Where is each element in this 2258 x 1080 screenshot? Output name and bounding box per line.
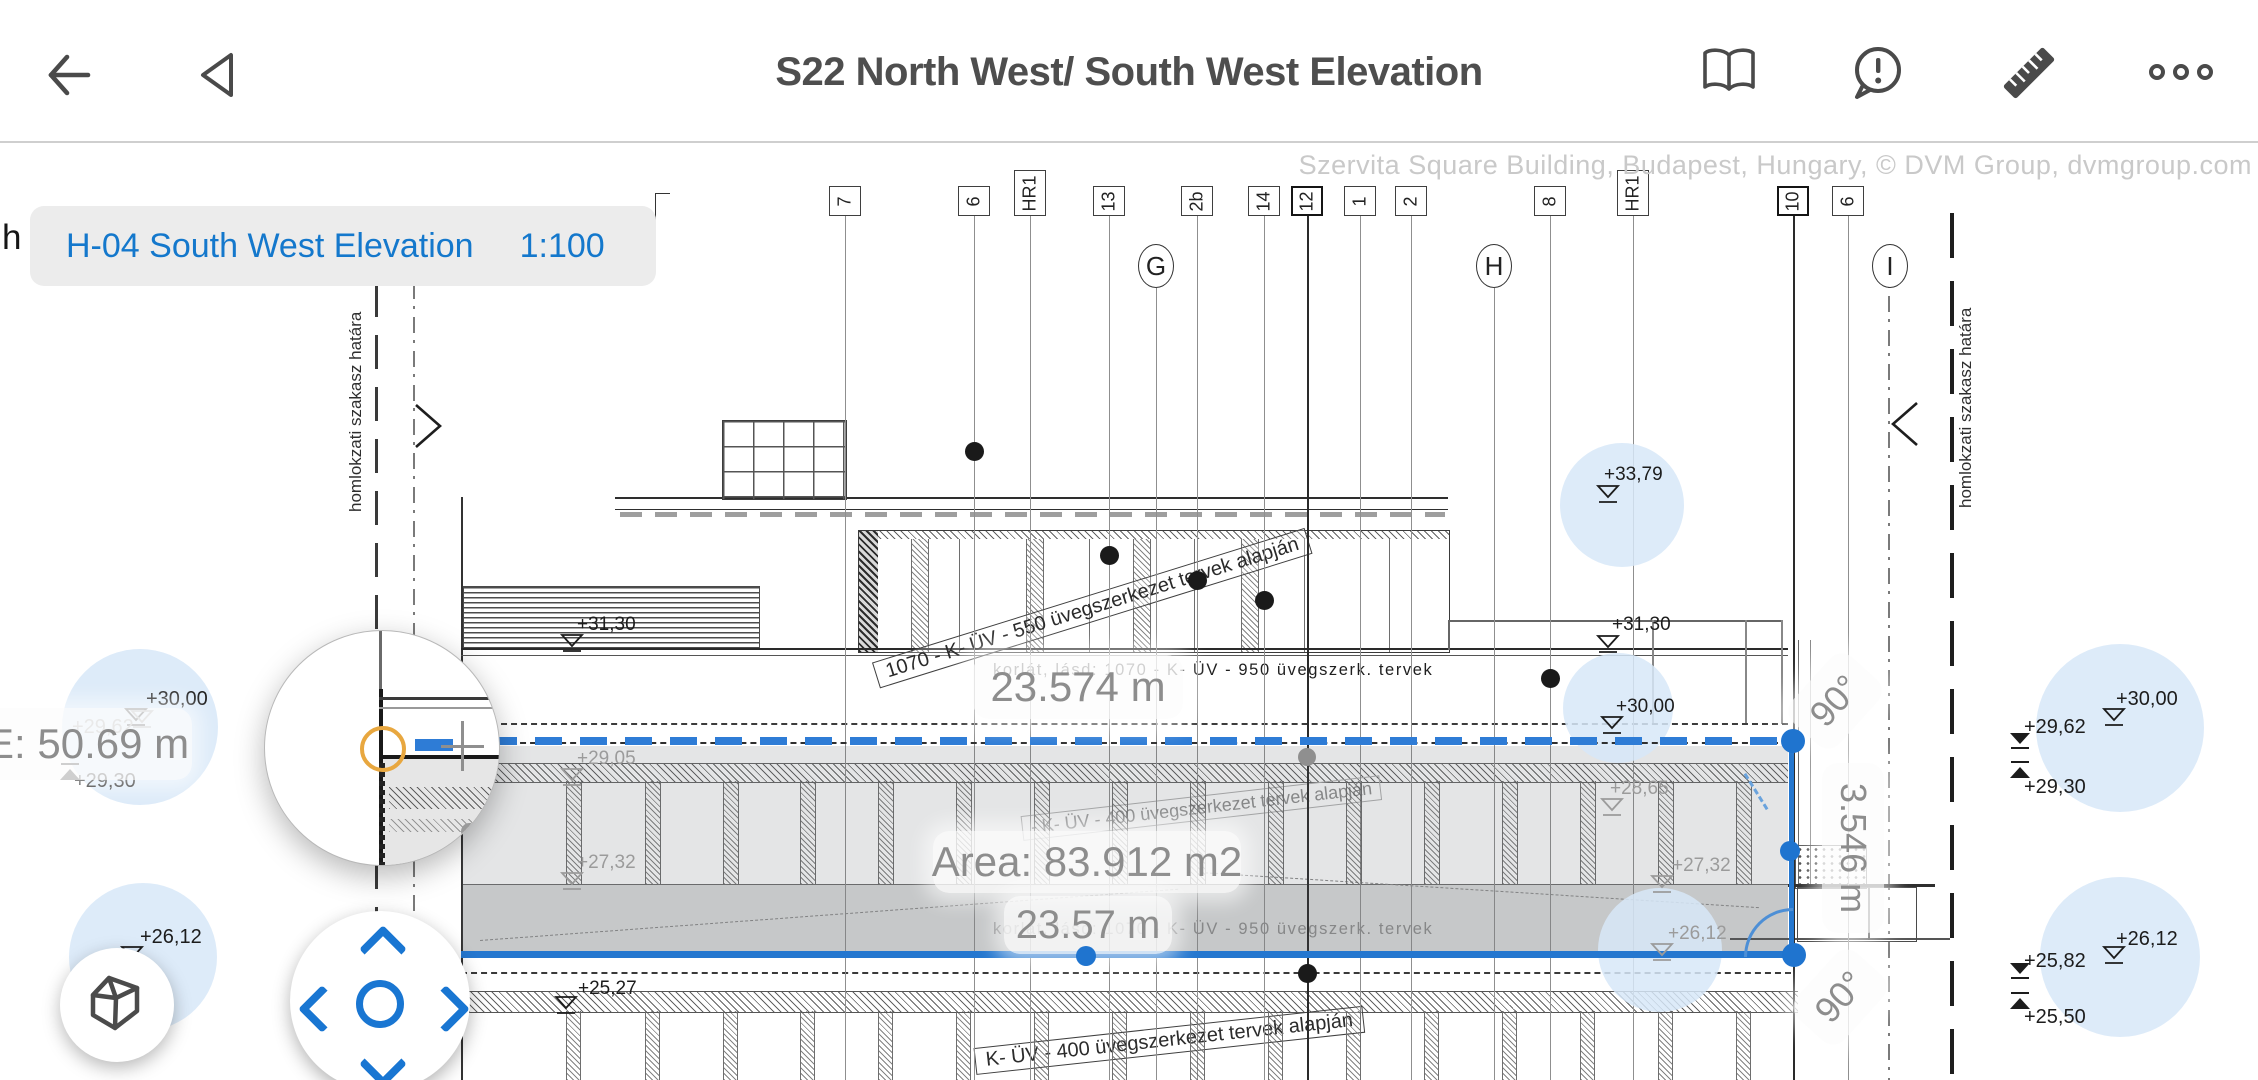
leader-dot <box>1100 546 1119 565</box>
mullion <box>956 1011 971 1080</box>
mullion <box>1502 1011 1517 1080</box>
level-marker-icon <box>2102 946 2126 970</box>
measure-length-top: 23.574 m <box>973 655 1183 719</box>
toolbar: S22 North West/ South West Elevation <box>0 0 2258 143</box>
level-marker-icon <box>1650 875 1674 899</box>
grid-marker-label: HR1 <box>1020 175 1041 211</box>
house-3d-icon <box>82 971 152 1040</box>
level-label: +29,62 <box>2024 716 2086 739</box>
level-label: +31,30 <box>577 614 636 636</box>
ruler-icon <box>1998 91 2060 108</box>
watermark: Szervita Square Building, Budapest, Hung… <box>1299 150 2252 181</box>
grid-marker-circle: I <box>1872 244 1908 288</box>
chevron-left-glyph <box>1891 401 1919 452</box>
mullion <box>1580 1011 1595 1080</box>
mullion <box>878 1011 893 1080</box>
grid-line <box>1494 288 1495 1080</box>
nav-pad[interactable] <box>290 911 470 1080</box>
grid-marker-circle: G <box>1138 244 1174 288</box>
grid-marker-label: 6 <box>963 196 984 206</box>
grid-marker-label: 2b <box>1187 191 1208 211</box>
grid-marker-box: 8 <box>1534 186 1566 216</box>
magnifier-loupe <box>264 630 500 866</box>
grid-marker-box: 6 <box>1832 186 1864 216</box>
mullion <box>723 1011 738 1080</box>
mullion <box>1034 1011 1049 1080</box>
grid-marker-box: 2 <box>1395 186 1427 216</box>
level-label: +25,27 <box>578 978 637 1000</box>
grid-marker-circle: H <box>1476 244 1512 288</box>
drawing-bracket <box>655 193 670 236</box>
previous-sheet-button[interactable] <box>194 48 248 107</box>
nav-up-button[interactable] <box>359 925 407 973</box>
measure-handle[interactable] <box>1781 729 1805 753</box>
level-marker-icon <box>554 996 578 1020</box>
grid-marker-label: 2 <box>1400 196 1421 206</box>
sheet-index-button[interactable] <box>1700 46 1758 101</box>
mullion <box>566 1011 581 1080</box>
chevron-right-glyph <box>414 403 442 454</box>
mullion <box>1658 1011 1673 1080</box>
level-marker-icon <box>1600 798 1624 822</box>
grid-marker-label: 12 <box>1297 191 1318 211</box>
level-marker-icon <box>1596 635 1620 659</box>
mullion <box>1190 1011 1205 1080</box>
grid-marker-box: 12 <box>1291 186 1323 216</box>
grid-marker-label: 1 <box>1349 196 1370 206</box>
leader-dot <box>965 442 984 461</box>
grid-marker-box: 10 <box>1777 186 1809 216</box>
boundary-text-left: homlokzati szakasz határa <box>346 332 366 512</box>
leader-dot <box>1541 669 1560 688</box>
nav-center-ring[interactable] <box>356 980 404 1028</box>
grid-marker-label: 8 <box>1539 196 1560 206</box>
ellipsis-icon <box>2148 73 2214 90</box>
level-label: +26,12 <box>140 926 202 949</box>
triangle-left-icon <box>194 89 248 106</box>
measure-handle[interactable] <box>1782 943 1806 967</box>
grid-marker-box: 14 <box>1248 186 1280 216</box>
level-label: +27,32 <box>577 852 636 874</box>
app-screen: S22 North West/ South West Elevation <box>0 0 2258 1080</box>
measure-tool-button[interactable] <box>1998 42 2060 109</box>
issue-bubble-icon <box>1848 89 1908 106</box>
sheet-chip[interactable]: H-04 South West Elevation 1:100 <box>30 206 656 286</box>
grid-marker-box: 7 <box>829 186 861 216</box>
measure-total-left: E: 50.69 m <box>0 708 192 780</box>
dark-mullion <box>859 531 878 652</box>
clipped-edge-text: h <box>2 218 21 258</box>
leader-dot <box>1255 591 1274 610</box>
measure-handle[interactable] <box>1780 841 1800 861</box>
meas​ure-area: Area: 83.912 m2 <box>933 831 1241 893</box>
back-arrow-icon <box>40 91 98 108</box>
level-label: +29,30 <box>2024 776 2086 799</box>
nav-down-button[interactable] <box>359 1040 407 1080</box>
mullion <box>800 1011 815 1080</box>
floor1-lintel-hatch <box>462 991 1798 1013</box>
mullion <box>1736 1011 1751 1080</box>
level-marker-icon <box>2102 708 2126 732</box>
measure-node-gray <box>1298 748 1316 766</box>
level-label: +25,50 <box>2024 1006 2086 1029</box>
book-icon <box>1700 83 1758 100</box>
level-marker-icon <box>2008 760 2032 784</box>
mullion <box>1346 1011 1361 1080</box>
roof-rail-structure <box>722 420 847 500</box>
level-marker-icon <box>2008 962 2032 986</box>
mullion <box>645 1011 660 1080</box>
level-marker-icon <box>1596 485 1620 509</box>
level-label: +28,65 <box>1610 778 1669 800</box>
level-label: +31,30 <box>1612 614 1671 636</box>
measure-height-right: 3.546 m <box>1822 763 1884 933</box>
boundary-text-right: homlokzati szakasz határa <box>1956 328 1976 508</box>
level-label: +33,79 <box>1604 464 1663 486</box>
level-marker-icon <box>2008 991 2032 1015</box>
leader-dot <box>1298 964 1317 983</box>
grid-marker-box: 13 <box>1093 186 1125 216</box>
level-marker-icon <box>1650 943 1674 967</box>
measure-handle[interactable] <box>1076 946 1096 966</box>
level-label: +26,12 <box>1668 923 1727 945</box>
grid-marker-box: 1 <box>1344 186 1376 216</box>
grid-marker-box: 2b <box>1181 186 1213 216</box>
level-label: +27,32 <box>1672 855 1731 877</box>
more-button[interactable] <box>2148 58 2214 91</box>
level-label: +30,00 <box>1616 696 1675 718</box>
level-label: +25,82 <box>2024 950 2086 973</box>
page-title: S22 North West/ South West Elevation <box>775 50 1482 95</box>
home-view-button[interactable] <box>60 948 174 1062</box>
grid-marker-label: 7 <box>834 196 855 206</box>
boundary-dashdot-right <box>1888 262 1890 1080</box>
level-label: +29,05 <box>577 748 636 770</box>
level-marker-icon <box>1600 716 1624 740</box>
mullion <box>1112 1011 1127 1080</box>
level-marker-icon <box>560 634 584 658</box>
snap-ring-icon <box>360 726 406 772</box>
grid-marker-label: 13 <box>1099 191 1120 211</box>
back-button[interactable] <box>40 46 98 109</box>
highlight-bubble <box>1560 443 1684 567</box>
sheet-chip-scale: 1:100 <box>520 227 605 266</box>
nav-left-button[interactable] <box>298 985 346 1033</box>
mullion <box>1424 1011 1439 1080</box>
level-marker-icon <box>2008 732 2032 756</box>
grid-marker-label: 10 <box>1783 191 1804 211</box>
grid-marker-label: 6 <box>1837 196 1858 206</box>
sheet-chip-label: H-04 South West Elevation <box>66 227 474 266</box>
grid-marker-box: HR1 <box>1014 170 1046 216</box>
boundary-dash-right <box>1950 213 1954 1080</box>
level-marker-icon <box>560 768 584 792</box>
mullion <box>1268 1011 1283 1080</box>
parapet-gray-dashes <box>620 512 1445 517</box>
grid-marker-label: 14 <box>1254 191 1275 211</box>
level-marker-icon <box>560 872 584 896</box>
nav-right-button[interactable] <box>422 985 470 1033</box>
leader-dot <box>1188 571 1207 590</box>
issues-button[interactable] <box>1848 42 1908 107</box>
grid-marker-box: 6 <box>958 186 990 216</box>
